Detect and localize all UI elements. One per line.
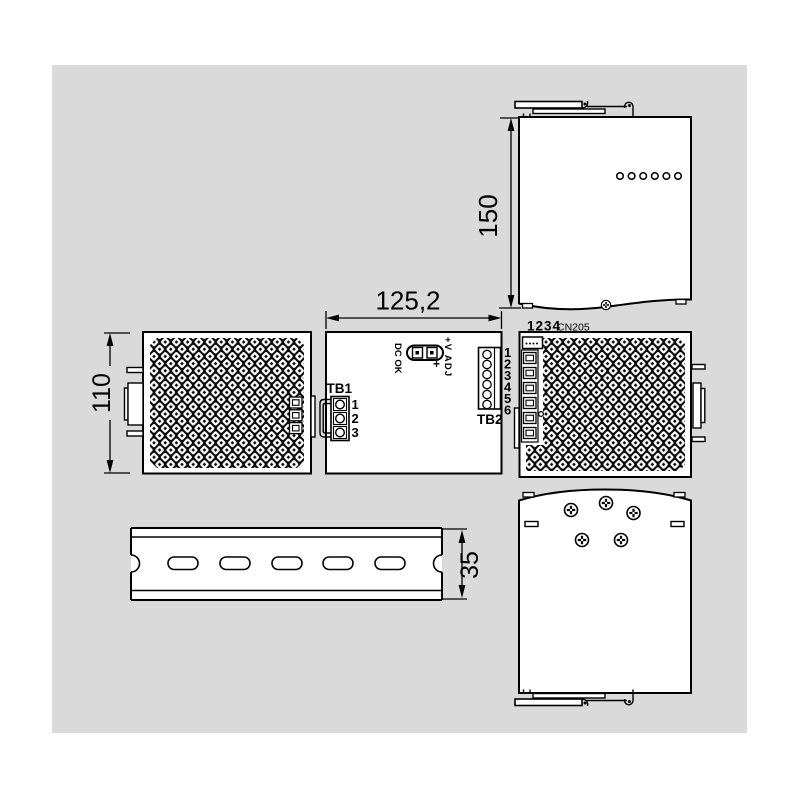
tb2-terminal-screw-5 [483,390,491,398]
v-adj-label: +V ADJ [442,337,453,377]
tb2-terminal-screw-3 [483,370,491,378]
mechanical-drawing: 150 DC OK +V ADJ + TB1 1 2 [0,0,800,800]
left-side-view [125,332,316,474]
cn205-label: CN205 [557,322,590,334]
foot-right [676,300,686,305]
din-rail [131,528,442,600]
plus-label: + [433,357,440,371]
side-tab-right [311,396,315,437]
right-vent-mesh [526,338,685,471]
cn205-socket [523,337,543,349]
pin-numbers-label: 1234 [527,319,561,334]
side-view-top [515,101,691,310]
front-view: DC OK +V ADJ + TB1 1 2 3 [320,332,512,474]
tb1-num-1: 1 [352,397,359,412]
dim-125-label: 125,2 [375,286,440,316]
tab-right [674,493,685,498]
slot-left [525,522,538,527]
tb1-terminal-screw-2 [336,414,345,423]
dim-110-label: 110 [88,373,116,413]
pilot-hole [539,412,544,417]
tb1-num-2: 2 [352,411,359,426]
tb1-side-terminals [290,397,303,434]
case-screw [601,300,610,309]
foot-left [523,304,533,309]
vadj-pot-dot [430,351,434,355]
dc-ok-label: DC OK [392,343,403,374]
side-tab-left [515,408,520,448]
bottom-view [515,490,691,707]
right-side-view: 1234 CN205 [515,319,706,478]
tb2-block: TB2 1 2 3 4 5 6 [477,345,512,427]
bottom-view-body [519,490,691,694]
tb1-terminal-screw-1 [336,400,345,409]
slot-right [671,522,684,527]
dc-ok-led-dot [416,351,420,355]
left-vent-mesh [150,338,304,468]
tb2-terminal-screw-2 [483,360,491,368]
mechanical-drawing-page: 150 DC OK +V ADJ + TB1 1 2 [0,0,800,800]
tb1-num-3: 3 [352,425,359,440]
tb2-terminal-screw-4 [483,380,491,388]
tb2-num-6: 6 [504,403,511,418]
dim-150-label: 150 [473,194,503,237]
tab-left [523,493,534,498]
tb2-label: TB2 [477,412,503,427]
cn205-connector [523,337,543,349]
tb2-terminal-screw-6 [483,400,491,408]
tb1-terminal-screw-3 [336,428,345,437]
dim-35-label: 35 [456,551,484,579]
tb1-label: TB1 [327,381,353,396]
tb2-terminal-screw-1 [483,350,491,358]
side-view-top-body [519,117,691,309]
